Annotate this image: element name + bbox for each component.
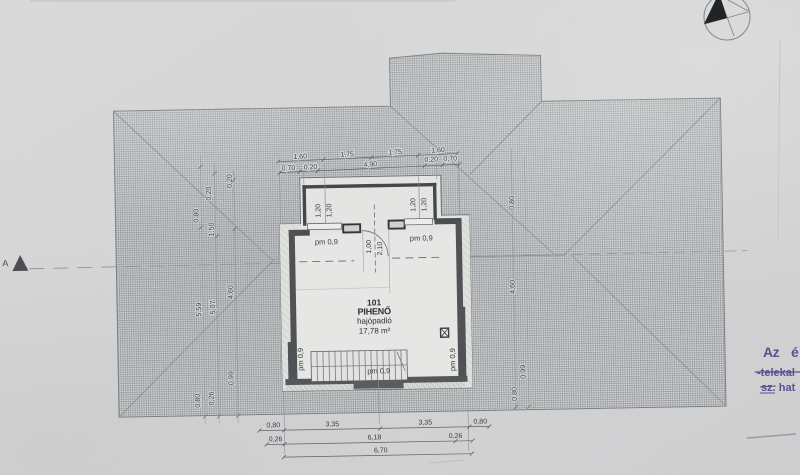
svg-text:0,80: 0,80	[266, 422, 280, 429]
svg-text:3,35: 3,35	[418, 419, 432, 426]
svg-text:1,20: 1,20	[326, 203, 333, 217]
svg-text:pm 0,9: pm 0,9	[296, 348, 305, 371]
svg-text:1,20: 1,20	[315, 204, 322, 218]
svg-text:A: A	[2, 258, 8, 268]
svg-text:5,59: 5,59	[194, 303, 203, 317]
svg-text:sz. hat: sz. hat	[761, 382, 796, 394]
svg-text:4,60: 4,60	[226, 285, 235, 299]
svg-text:0,26: 0,26	[207, 391, 216, 405]
svg-text:Az: Az	[763, 344, 780, 360]
svg-text:6,18: 6,18	[368, 434, 382, 441]
svg-text:2,10: 2,10	[377, 242, 384, 256]
svg-text:17,78 m²: 17,78 m²	[359, 326, 391, 336]
svg-text:0,70: 0,70	[443, 155, 457, 163]
svg-text:0,20: 0,20	[304, 164, 318, 172]
svg-text:0,20: 0,20	[424, 156, 438, 164]
svg-text:0,99: 0,99	[518, 365, 527, 379]
svg-text:0,80: 0,80	[473, 418, 487, 425]
svg-text:1,75: 1,75	[340, 151, 354, 159]
svg-text:1,50: 1,50	[207, 222, 216, 236]
svg-text:0,26: 0,26	[449, 433, 463, 440]
svg-text:0,26: 0,26	[269, 436, 283, 443]
svg-text:0,99: 0,99	[226, 371, 235, 385]
svg-text:0,80: 0,80	[510, 387, 519, 401]
svg-text:1,60: 1,60	[431, 147, 445, 155]
svg-text:-telekal: -telekal	[757, 367, 795, 379]
svg-text:0,70: 0,70	[282, 165, 296, 173]
svg-text:pm 0,9: pm 0,9	[367, 366, 390, 375]
svg-text:1,20: 1,20	[421, 198, 428, 212]
svg-text:1,20: 1,20	[410, 198, 417, 212]
svg-text:1,00: 1,00	[366, 240, 373, 254]
svg-text:5,07: 5,07	[208, 300, 217, 314]
svg-text:1,60: 1,60	[293, 153, 307, 161]
svg-text:6,70: 6,70	[374, 447, 388, 454]
svg-text:4,60: 4,60	[508, 280, 517, 294]
svg-text:0,20: 0,20	[204, 186, 213, 200]
svg-text:pm 0,9: pm 0,9	[448, 348, 457, 371]
svg-text:0,80: 0,80	[193, 394, 202, 408]
svg-text:0,80: 0,80	[191, 209, 200, 223]
svg-text:0,80: 0,80	[507, 196, 516, 210]
svg-text:pm 0,9: pm 0,9	[410, 233, 433, 242]
svg-text:hajópadló: hajópadló	[357, 316, 392, 326]
svg-text:1,75: 1,75	[388, 149, 402, 157]
svg-text:pm 0,9: pm 0,9	[315, 237, 338, 246]
svg-text:PIHENŐ: PIHENŐ	[357, 305, 391, 317]
svg-text:4,90: 4,90	[363, 161, 377, 169]
svg-text:é: é	[791, 344, 799, 360]
svg-text:3,35: 3,35	[325, 421, 339, 428]
